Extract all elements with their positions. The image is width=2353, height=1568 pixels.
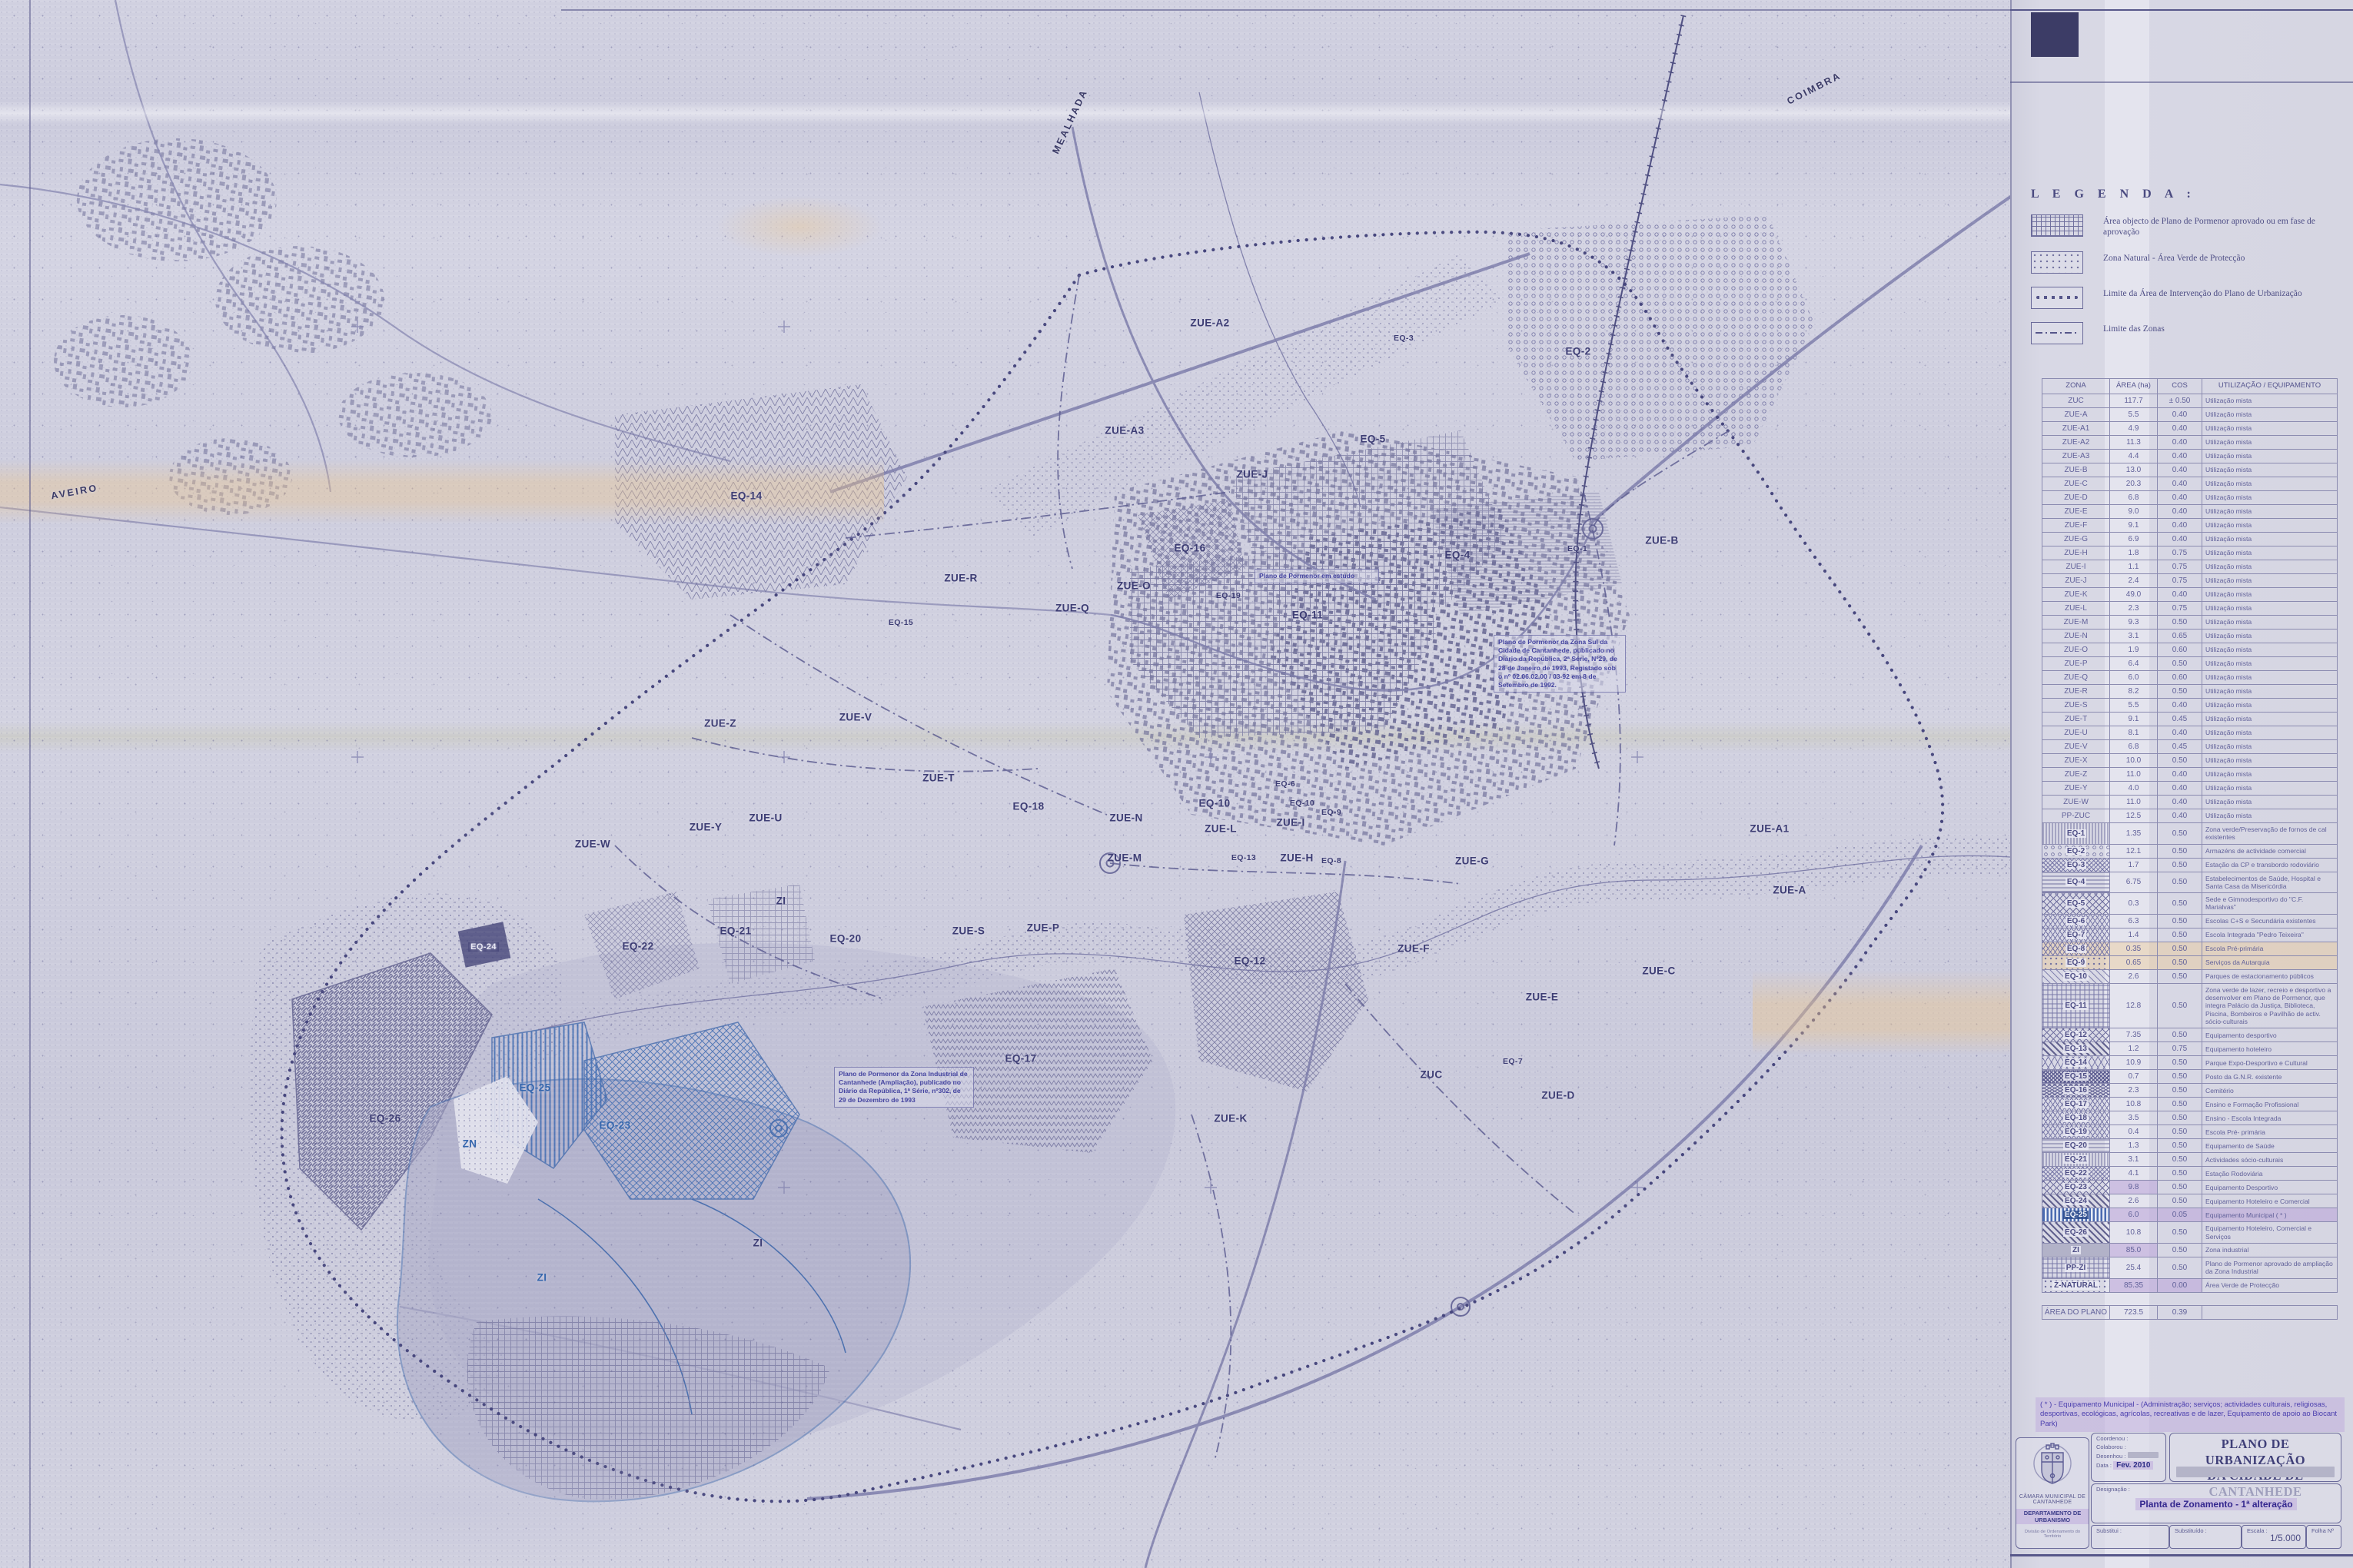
cell-area: 6.8 — [2110, 739, 2158, 753]
cell-area: 2.6 — [2110, 969, 2158, 983]
cell-uso: Plano de Pormenor aprovado de ampliação … — [2202, 1257, 2338, 1278]
data-value: Fev. 2010 — [2113, 1461, 2153, 1470]
table-row: EQ-213.10.50Actividades sócio-culturais — [2042, 1153, 2338, 1167]
cell-uso: Utilização mista — [2202, 407, 2338, 421]
designation-box: Designação : Planta de Zonamento - 1ª al… — [2091, 1483, 2341, 1523]
cell-cos: 0.50 — [2158, 822, 2202, 844]
cell-cos: 0.75 — [2158, 546, 2202, 560]
table-row: ZUE-U8.10.40Utilização mista — [2042, 726, 2338, 739]
cell-uso: Equipamento de Saúde — [2202, 1139, 2338, 1153]
table-row: ZUE-E9.00.40Utilização mista — [2042, 504, 2338, 518]
cell-area: 9.8 — [2110, 1181, 2158, 1194]
cell-uso: Estação Rodoviária — [2202, 1167, 2338, 1181]
cell-uso: Equipamento desportivo — [2202, 1028, 2338, 1042]
cell-area: 11.3 — [2110, 435, 2158, 449]
table-row: EQ-31.70.50Estação da CP e transbordo ro… — [2042, 858, 2338, 872]
sw-dots-swatch — [2031, 251, 2083, 274]
cell-zona: PP-ZUC — [2042, 809, 2110, 822]
table-row: EQ-131.20.75Equipamento hoteleiro — [2042, 1042, 2338, 1056]
cell-cos: 0.60 — [2158, 670, 2202, 684]
cell-cos: 0.75 — [2158, 601, 2202, 615]
cell-area: 1.4 — [2110, 928, 2158, 942]
cell-cos: 0.40 — [2158, 518, 2202, 532]
cell-zona: ZUC — [2042, 394, 2110, 407]
cell-zona: EQ-5 — [2042, 893, 2110, 915]
cell-zona: ZUE-V — [2042, 739, 2110, 753]
cell-area: 0.35 — [2110, 942, 2158, 955]
cell-cos: 0.75 — [2158, 573, 2202, 587]
table-row: ZUE-J2.40.75Utilização mista — [2042, 573, 2338, 587]
cell-cos: 0.40 — [2158, 532, 2202, 546]
cell-cos: 0.39 — [2158, 1305, 2202, 1319]
cell-cos: 0.50 — [2158, 955, 2202, 969]
cell-cos: 0.50 — [2158, 1181, 2202, 1194]
cell-zona: EQ-15 — [2042, 1070, 2110, 1084]
table-row: ZUE-Z11.00.40Utilização mista — [2042, 767, 2338, 781]
cell-uso: Zona industrial — [2202, 1243, 2338, 1257]
cell-area: 1.8 — [2110, 546, 2158, 560]
cell-cos: 0.40 — [2158, 463, 2202, 477]
cell-uso: Escola Pré-primária — [2202, 942, 2338, 955]
cell-uso: Escolas C+S e Secundária existentes — [2202, 914, 2338, 928]
cell-zona: ZUE-I — [2042, 560, 2110, 573]
legend-title: L E G E N D A : — [2031, 188, 2338, 201]
cell-uso: Estabelecimentos de Saúde, Hospital e Sa… — [2202, 872, 2338, 893]
escala-value: 1/5.000 — [2242, 1533, 2305, 1543]
cell-uso: Cemitério — [2202, 1084, 2338, 1098]
table-row: PP-ZI25.40.50Plano de Pormenor aprovado … — [2042, 1257, 2338, 1278]
cell-uso: Zona verde de lazer, recreio e desportiv… — [2202, 983, 2338, 1028]
cell-cos: 0.50 — [2158, 1167, 2202, 1181]
cell-zona: ZUE-A — [2042, 407, 2110, 421]
table-row: ZUE-G6.90.40Utilização mista — [2042, 532, 2338, 546]
cell-area: 9.1 — [2110, 518, 2158, 532]
cell-cos: 0.50 — [2158, 928, 2202, 942]
cell-zona: ZUE-T — [2042, 712, 2110, 726]
cell-area: 1.1 — [2110, 560, 2158, 573]
cell-cos: 0.50 — [2158, 1056, 2202, 1070]
cell-area: 1.3 — [2110, 1139, 2158, 1153]
colaborou-label: Colaborou : — [2092, 1442, 2165, 1450]
col-header-zona: ZONA — [2042, 379, 2110, 394]
cell-zona: ZUE-S — [2042, 698, 2110, 712]
cell-cos: 0.50 — [2158, 684, 2202, 698]
cell-cos: 0.50 — [2158, 1070, 2202, 1084]
cell-uso: Área Verde de Protecção — [2202, 1278, 2338, 1292]
table-row: ZUE-S5.50.40Utilização mista — [2042, 698, 2338, 712]
cell-cos: 0.40 — [2158, 421, 2202, 435]
cell-uso: Utilização mista — [2202, 767, 2338, 781]
cell-uso: Equipamento hoteleiro — [2202, 1042, 2338, 1056]
cell-area: 10.8 — [2110, 1098, 2158, 1111]
col-header-cos: COS — [2158, 379, 2202, 394]
table-row: ZUE-F9.10.40Utilização mista — [2042, 518, 2338, 532]
cell-area: 4.1 — [2110, 1167, 2158, 1181]
cell-zona: ZUE-D — [2042, 490, 2110, 504]
table-row: ZUE-T9.10.45Utilização mista — [2042, 712, 2338, 726]
cell-area: 0.4 — [2110, 1125, 2158, 1139]
table-header-row: ZONA ÁREA (ha) COS UTILIZAÇÃO / EQUIPAME… — [2042, 379, 2338, 394]
table-row: EQ-11.350.50Zona verde/Preservação de fo… — [2042, 822, 2338, 844]
table-row: ZUE-P6.40.50Utilização mista — [2042, 656, 2338, 670]
cell-uso: Utilização mista — [2202, 490, 2338, 504]
table-row: ZUE-W11.00.40Utilização mista — [2042, 795, 2338, 809]
cell-cos: 0.40 — [2158, 726, 2202, 739]
cell-zona: ZUE-G — [2042, 532, 2110, 546]
cell-uso: Utilização mista — [2202, 629, 2338, 643]
cell-cos: 0.40 — [2158, 781, 2202, 795]
table-row: EQ-162.30.50Cemitério — [2042, 1084, 2338, 1098]
cell-area: 5.5 — [2110, 698, 2158, 712]
table-row: EQ-190.40.50Escola Pré- primária — [2042, 1125, 2338, 1139]
cell-uso: Utilização mista — [2202, 739, 2338, 753]
table-row: EQ-150.70.50Posto da G.N.R. existente — [2042, 1070, 2338, 1084]
legend-item-label: Limite das Zonas — [2103, 322, 2165, 334]
cell-zona: ZUE-B — [2042, 463, 2110, 477]
cell-zona: ÁREA DO PLANO — [2042, 1305, 2110, 1319]
cell-zona: EQ-3 — [2042, 858, 2110, 872]
cell-zona: EQ-14 — [2042, 1056, 2110, 1070]
cell-zona: EQ-19 — [2042, 1125, 2110, 1139]
designacao-value: Planta de Zonamento - 1ª alteração — [2135, 1498, 2296, 1510]
cell-uso: Utilização mista — [2202, 615, 2338, 629]
cell-cos: 0.40 — [2158, 435, 2202, 449]
cell-cos: 0.50 — [2158, 1222, 2202, 1244]
cell-zona: EQ-20 — [2042, 1139, 2110, 1153]
cell-cos: 0.50 — [2158, 983, 2202, 1028]
table-gap — [2042, 1292, 2338, 1305]
table-row: EQ-66.30.50Escolas C+S e Secundária exis… — [2042, 914, 2338, 928]
table-row: ZUE-A5.50.40Utilização mista — [2042, 407, 2338, 421]
cell-uso: Utilização mista — [2202, 753, 2338, 767]
cell-area: 20.3 — [2110, 477, 2158, 490]
legend: L E G E N D A : Área objecto de Plano de… — [2031, 188, 2338, 344]
table-row: EQ-90.650.50Serviços da Autarquia — [2042, 955, 2338, 969]
table-footer-row: ÁREA DO PLANO723.50.39 — [2042, 1305, 2338, 1319]
table-row: EQ-2610.80.50Equipamento Hoteleiro, Come… — [2042, 1222, 2338, 1244]
table-row: EQ-46.750.50Estabelecimentos de Saúde, H… — [2042, 872, 2338, 893]
cell-cos: 0.50 — [2158, 753, 2202, 767]
substitui-label: Substitui : — [2092, 1526, 2169, 1534]
cell-uso: Posto da G.N.R. existente — [2202, 1070, 2338, 1084]
table-row: ZUE-V6.80.45Utilização mista — [2042, 739, 2338, 753]
table-row: ZUE-C20.30.40Utilização mista — [2042, 477, 2338, 490]
table-row: ZUE-M9.30.50Utilização mista — [2042, 615, 2338, 629]
table-row: ZUE-D6.80.40Utilização mista — [2042, 490, 2338, 504]
cell-zona: ZUE-E — [2042, 504, 2110, 518]
title-block: CÂMARA MUNICIPAL DE CANTANHEDE DEPARTAME… — [2012, 1431, 2343, 1553]
substitui-box: Substitui : — [2091, 1525, 2169, 1549]
cell-uso: Armazéns de actividade comercial — [2202, 844, 2338, 858]
cell-zona: EQ-17 — [2042, 1098, 2110, 1111]
cell-zona: EQ-4 — [2042, 872, 2110, 893]
cell-cos: 0.45 — [2158, 739, 2202, 753]
legend-item: Limite da Área de Intervenção do Plano d… — [2031, 287, 2338, 309]
cell-uso: Ensino e Formação Profissional — [2202, 1098, 2338, 1111]
table-row: ZUC117.7± 0.50Utilização mista — [2042, 394, 2338, 407]
cell-zona: ZUE-R — [2042, 684, 2110, 698]
table-row: ZUE-A211.30.40Utilização mista — [2042, 435, 2338, 449]
cell-uso: Utilização mista — [2202, 670, 2338, 684]
cell-zona: ZUE-A1 — [2042, 421, 2110, 435]
cell-cos: 0.40 — [2158, 477, 2202, 490]
cell-cos: ± 0.50 — [2158, 394, 2202, 407]
zone-table: ZONA ÁREA (ha) COS UTILIZAÇÃO / EQUIPAME… — [2042, 378, 2338, 1320]
plan-title-box: PLANO DE URBANIZAÇÃO DA CIDADE DE CANTAN… — [2169, 1433, 2341, 1482]
municipality-box: CÂMARA MUNICIPAL DE CANTANHEDE DEPARTAME… — [2016, 1437, 2089, 1549]
cell-cos: 0.50 — [2158, 893, 2202, 915]
cell-uso: Utilização mista — [2202, 781, 2338, 795]
cell-uso: Utilização mista — [2202, 643, 2338, 656]
table-row: EQ-1410.90.50Parque Expo-Desportivo e Cu… — [2042, 1056, 2338, 1070]
cell-area: 6.9 — [2110, 532, 2158, 546]
cell-cos: 0.50 — [2158, 1125, 2202, 1139]
table-row: ZUE-X10.00.50Utilização mista — [2042, 753, 2338, 767]
cell-zona: EQ-18 — [2042, 1111, 2110, 1125]
cell-uso: Utilização mista — [2202, 504, 2338, 518]
cell-area: 117.7 — [2110, 394, 2158, 407]
cell-zona: ZUE-J — [2042, 573, 2110, 587]
cell-uso: Utilização mista — [2202, 421, 2338, 435]
cell-cos: 0.50 — [2158, 1243, 2202, 1257]
cell-cos: 0.40 — [2158, 490, 2202, 504]
panel-top-line1 — [2010, 9, 2353, 11]
cell-zona: ZUE-K — [2042, 587, 2110, 601]
cell-uso: Serviços da Autarquia — [2202, 955, 2338, 969]
cell-zona: ZUE-A2 — [2042, 435, 2110, 449]
cell-area: 0.65 — [2110, 955, 2158, 969]
map-canvas — [0, 0, 2353, 1568]
substituido-label: Substituído : — [2170, 1526, 2241, 1534]
corner-mark — [2031, 12, 2079, 57]
cell-zona: ZUE-M — [2042, 615, 2110, 629]
table-row: ZUE-A14.90.40Utilização mista — [2042, 421, 2338, 435]
cell-cos: 0.40 — [2158, 504, 2202, 518]
cell-cos: 0.60 — [2158, 643, 2202, 656]
cell-uso: Utilização mista — [2202, 809, 2338, 822]
cell-uso: Utilização mista — [2202, 726, 2338, 739]
cell-cos: 0.50 — [2158, 942, 2202, 955]
cell-cos: 0.50 — [2158, 1028, 2202, 1042]
cell-zona: ZUE-H — [2042, 546, 2110, 560]
folha-box: Folha Nº — [2306, 1525, 2341, 1549]
designacao-label: Designação : — [2092, 1484, 2341, 1493]
cell-cos: 0.45 — [2158, 712, 2202, 726]
cell-zona: Z-NATURAL — [2042, 1278, 2110, 1292]
table-row: ZUE-A34.40.40Utilização mista — [2042, 449, 2338, 463]
cell-area: 1.7 — [2110, 858, 2158, 872]
plan-sheet: L E G E N D A : Área objecto de Plano de… — [0, 0, 2353, 1568]
cell-area: 4.0 — [2110, 781, 2158, 795]
table-row: EQ-80.350.50Escola Pré-primária — [2042, 942, 2338, 955]
cell-uso: Utilização mista — [2202, 477, 2338, 490]
municipality-name: CÂMARA MUNICIPAL DE CANTANHEDE — [2016, 1494, 2089, 1505]
panel-divider — [2010, 0, 2012, 1568]
cell-area: 723.5 — [2110, 1305, 2158, 1319]
panel-bottom-line — [2010, 1554, 2353, 1556]
desenhou-label: Desenhou : — [2092, 1450, 2165, 1460]
cell-zona: EQ-11 — [2042, 983, 2110, 1028]
cell-area: 8.2 — [2110, 684, 2158, 698]
cell-uso: Utilização mista — [2202, 795, 2338, 809]
cell-zona: EQ-23 — [2042, 1181, 2110, 1194]
cell-uso: Utilização mista — [2202, 656, 2338, 670]
cell-cos: 0.65 — [2158, 629, 2202, 643]
cell-cos: 0.50 — [2158, 872, 2202, 893]
legend-item: Limite das Zonas — [2031, 322, 2338, 344]
cell-zona: ZUE-Z — [2042, 767, 2110, 781]
cell-cos: 0.50 — [2158, 1098, 2202, 1111]
table-row: PP-ZUC12.50.40Utilização mista — [2042, 809, 2338, 822]
cell-uso: Parques de estacionamento públicos — [2202, 969, 2338, 983]
cell-area: 12.1 — [2110, 844, 2158, 858]
cell-zona: EQ-21 — [2042, 1153, 2110, 1167]
cell-zona: EQ-7 — [2042, 928, 2110, 942]
redacted-name — [2128, 1452, 2159, 1458]
cell-uso: Utilização mista — [2202, 532, 2338, 546]
cell-zona: ZUE-Y — [2042, 781, 2110, 795]
cell-area: 4.4 — [2110, 449, 2158, 463]
table-row: EQ-127.350.50Equipamento desportivo — [2042, 1028, 2338, 1042]
cell-cos: 0.50 — [2158, 844, 2202, 858]
cell-area: 7.35 — [2110, 1028, 2158, 1042]
cell-zona: EQ-24 — [2042, 1194, 2110, 1208]
cell-uso: Utilização mista — [2202, 463, 2338, 477]
table-row: EQ-224.10.50Estação Rodoviária — [2042, 1167, 2338, 1181]
cell-area: 6.0 — [2110, 670, 2158, 684]
cell-uso: Ensino - Escola Integrada — [2202, 1111, 2338, 1125]
cell-area: 2.4 — [2110, 573, 2158, 587]
cell-cos: 0.50 — [2158, 1139, 2202, 1153]
cell-zona: ZUE-U — [2042, 726, 2110, 739]
cell-cos: 0.50 — [2158, 1111, 2202, 1125]
cell-uso: Utilização mista — [2202, 587, 2338, 601]
legend-item-label: Área objecto de Plano de Pormenor aprova… — [2103, 214, 2338, 238]
substituido-box: Substituído : — [2169, 1525, 2242, 1549]
cell-area: 2.3 — [2110, 601, 2158, 615]
cell-area: 0.7 — [2110, 1070, 2158, 1084]
table-row: ZUE-L2.30.75Utilização mista — [2042, 601, 2338, 615]
panel-top-line2 — [2010, 81, 2353, 83]
cell-area: 2.3 — [2110, 1084, 2158, 1098]
cell-zona: EQ-25 — [2042, 1208, 2110, 1222]
cell-uso — [2202, 1305, 2338, 1319]
frame-top — [561, 9, 2010, 11]
cell-area: 0.3 — [2110, 893, 2158, 915]
cell-cos: 0.50 — [2158, 656, 2202, 670]
table-footnote: ( * ) - Equipamento Municipal - (Adminis… — [2036, 1397, 2345, 1432]
cell-zona: EQ-16 — [2042, 1084, 2110, 1098]
cell-cos: 0.50 — [2158, 1084, 2202, 1098]
cell-area: 8.1 — [2110, 726, 2158, 739]
legend-item: Zona Natural - Área Verde de Protecção — [2031, 251, 2338, 274]
cell-cos: 0.50 — [2158, 914, 2202, 928]
cell-area: 13.0 — [2110, 463, 2158, 477]
cell-zona: EQ-12 — [2042, 1028, 2110, 1042]
legend-items: Área objecto de Plano de Pormenor aprova… — [2031, 214, 2338, 344]
cell-area: 6.0 — [2110, 1208, 2158, 1222]
table-row: EQ-201.30.50Equipamento de Saúde — [2042, 1139, 2338, 1153]
cell-area: 5.5 — [2110, 407, 2158, 421]
cell-area: 9.3 — [2110, 615, 2158, 629]
table-row: ZI85.00.50Zona industrial — [2042, 1243, 2338, 1257]
legend-item: Área objecto de Plano de Pormenor aprova… — [2031, 214, 2338, 238]
cell-area: 85.35 — [2110, 1278, 2158, 1292]
cell-zona: EQ-2 — [2042, 844, 2110, 858]
cell-zona: EQ-13 — [2042, 1042, 2110, 1056]
cell-uso: Utilização mista — [2202, 712, 2338, 726]
table-row: EQ-1112.80.50Zona verde de lazer, recrei… — [2042, 983, 2338, 1028]
cell-area: 1.9 — [2110, 643, 2158, 656]
cell-area: 3.1 — [2110, 1153, 2158, 1167]
cell-cos: 0.40 — [2158, 407, 2202, 421]
cell-area: 9.1 — [2110, 712, 2158, 726]
cell-uso: Sede e Gimnodesportivo do "C.F. Marialva… — [2202, 893, 2338, 915]
cell-area: 85.0 — [2110, 1243, 2158, 1257]
cell-area: 10.9 — [2110, 1056, 2158, 1070]
cell-zona: EQ-8 — [2042, 942, 2110, 955]
table-row: ZUE-O1.90.60Utilização mista — [2042, 643, 2338, 656]
cell-uso: Parque Expo-Desportivo e Cultural — [2202, 1056, 2338, 1070]
sw-dotline-swatch — [2031, 287, 2083, 309]
cell-area: 9.0 — [2110, 504, 2158, 518]
cell-area: 10.0 — [2110, 753, 2158, 767]
cell-zona: ZUE-Q — [2042, 670, 2110, 684]
cell-uso: Equipamento Desportivo — [2202, 1181, 2338, 1194]
cell-zona: ZUE-N — [2042, 629, 2110, 643]
cell-zona: ZUE-A3 — [2042, 449, 2110, 463]
col-header-area: ÁREA (ha) — [2110, 379, 2158, 394]
cell-cos: 0.50 — [2158, 969, 2202, 983]
table-row: ZUE-Q6.00.60Utilização mista — [2042, 670, 2338, 684]
cell-cos: 0.75 — [2158, 560, 2202, 573]
table-row: ZUE-Y4.00.40Utilização mista — [2042, 781, 2338, 795]
table-row: Z-NATURAL85.350.00Área Verde de Protecçã… — [2042, 1278, 2338, 1292]
sw-dashdot-swatch — [2031, 322, 2083, 344]
department-name: DEPARTAMENTO DE URBANISMO — [2016, 1509, 2089, 1524]
cell-cos: 0.05 — [2158, 1208, 2202, 1222]
cell-uso: Utilização mista — [2202, 684, 2338, 698]
cell-area: 3.5 — [2110, 1111, 2158, 1125]
cell-area: 10.8 — [2110, 1222, 2158, 1244]
cell-cos: 0.50 — [2158, 1257, 2202, 1278]
sw-grid-swatch — [2031, 214, 2083, 237]
cell-area: 6.8 — [2110, 490, 2158, 504]
cell-zona: ZUE-F — [2042, 518, 2110, 532]
cell-zona: ZI — [2042, 1243, 2110, 1257]
cell-area: 49.0 — [2110, 587, 2158, 601]
cell-uso: Escola Pré- primária — [2202, 1125, 2338, 1139]
table-row: EQ-183.50.50Ensino - Escola Integrada — [2042, 1111, 2338, 1125]
col-header-uso: UTILIZAÇÃO / EQUIPAMENTO — [2202, 379, 2338, 394]
table-row: ZUE-I1.10.75Utilização mista — [2042, 560, 2338, 573]
table-row: ZUE-B13.00.40Utilização mista — [2042, 463, 2338, 477]
cell-uso: Equipamento Municipal ( * ) — [2202, 1208, 2338, 1222]
escala-box: Escala : 1/5.000 — [2242, 1525, 2306, 1549]
cell-zona: EQ-22 — [2042, 1167, 2110, 1181]
cell-uso: Utilização mista — [2202, 546, 2338, 560]
cell-cos: 0.40 — [2158, 795, 2202, 809]
cell-area: 3.1 — [2110, 629, 2158, 643]
cell-area: 6.4 — [2110, 656, 2158, 670]
cell-uso: Equipamento Hoteleiro, Comercial e Servi… — [2202, 1222, 2338, 1244]
cell-uso: Actividades sócio-culturais — [2202, 1153, 2338, 1167]
table-row: EQ-50.30.50Sede e Gimnodesportivo do "C.… — [2042, 893, 2338, 915]
cell-cos: 0.50 — [2158, 1153, 2202, 1167]
cell-zona: EQ-26 — [2042, 1222, 2110, 1244]
coat-of-arms — [2029, 1442, 2075, 1490]
cell-uso: Utilização mista — [2202, 573, 2338, 587]
